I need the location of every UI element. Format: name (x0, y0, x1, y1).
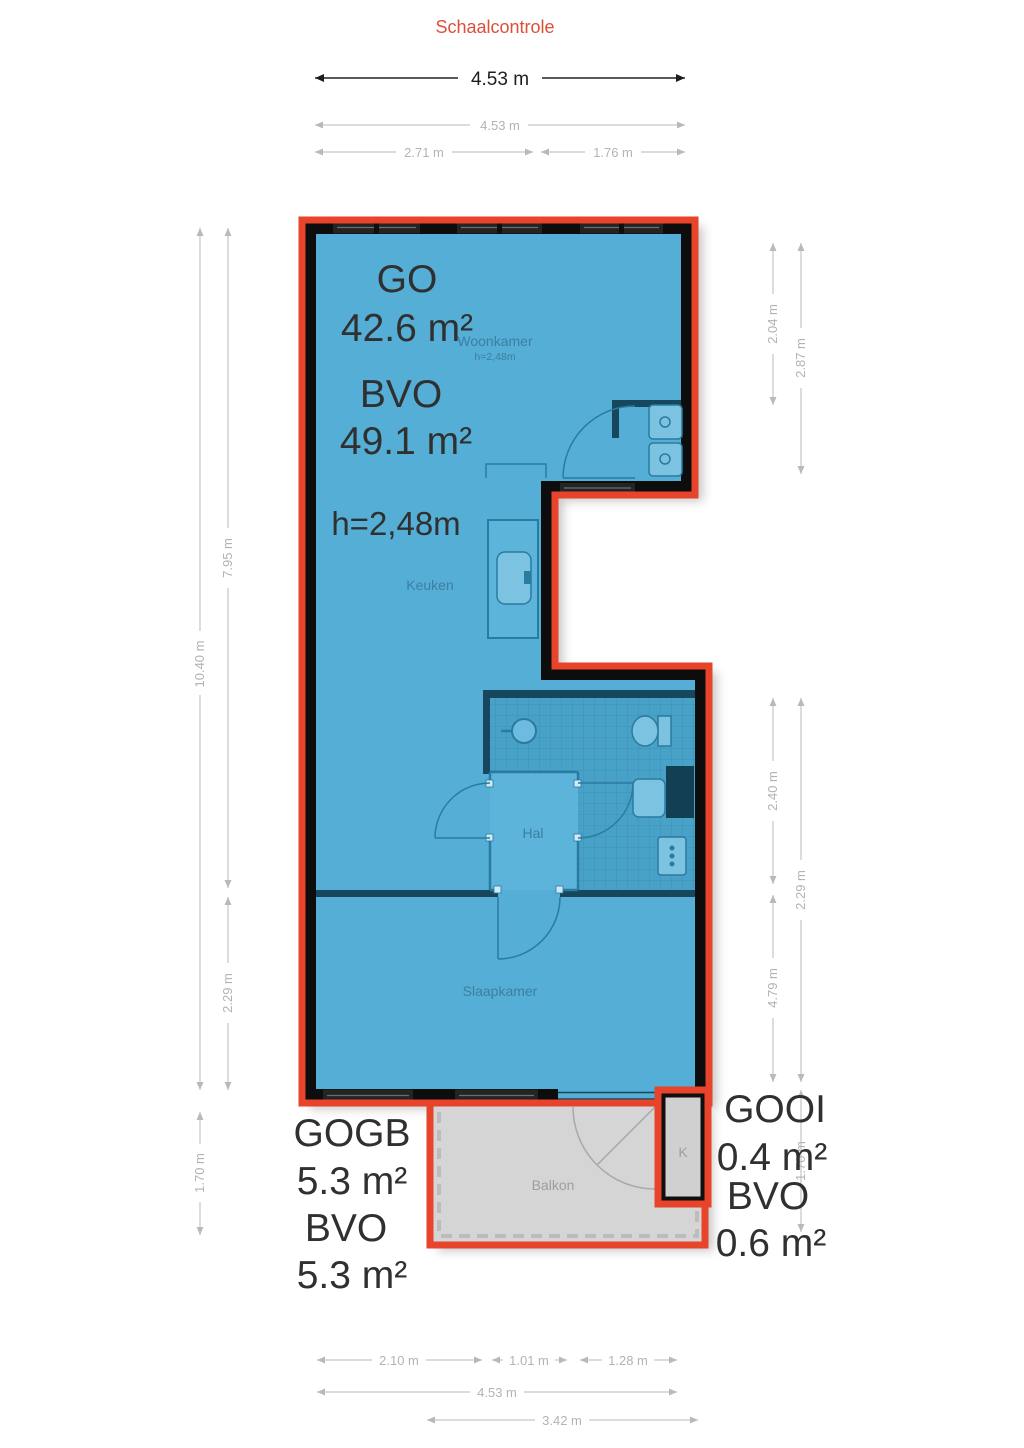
dim-label-bottom-5: 3.42 m (542, 1413, 582, 1428)
gogb-bvo-label: BVO (305, 1207, 387, 1250)
utility-shaft (666, 766, 694, 818)
partition-bedroom-right (560, 890, 695, 897)
go-value: 42.6 m² (341, 307, 473, 350)
dim-label-top-right: 1.76 m (593, 145, 633, 160)
washer-knob (670, 846, 675, 851)
washer-knob (670, 862, 675, 867)
gooi-bvo-label: BVO (727, 1175, 809, 1218)
dim-label-right-2: 2.87 m (793, 338, 808, 378)
dimensions-bottom: 2.10 m 1.01 m 1.28 m 4.53 m 3.42 m (317, 1352, 698, 1428)
room-label-slaapkamer: Slaapkamer (463, 983, 538, 999)
area-summary-storage: GOOI 0.4 m² BVO 0.6 m² (716, 1088, 828, 1265)
kitchen-faucet (524, 571, 531, 584)
washer-knob (670, 854, 675, 859)
bvo-value: 49.1 m² (340, 420, 472, 463)
dim-label-right-4: 4.79 m (765, 968, 780, 1008)
floor-plan-svg: Schaalcontrole 4.53 m 4.53 m 2.71 m 1.76… (0, 0, 1024, 1448)
gogb-label: GOGB (293, 1112, 410, 1155)
partition-wc-left (612, 400, 619, 438)
partition-bathroom-top (483, 690, 695, 698)
dim-label-right-5: 2.29 m (793, 870, 808, 910)
dim-label-bottom-3: 1.28 m (608, 1353, 648, 1368)
dim-label-bottom-2: 1.01 m (509, 1353, 549, 1368)
door-jamb (556, 886, 563, 893)
wc-boiler (649, 443, 682, 476)
gogb-bvo-value: 5.3 m² (297, 1254, 408, 1297)
dim-label-left-upper: 7.95 m (220, 538, 235, 578)
scale-check-label: 4.53 m (471, 69, 529, 90)
dim-label-left-balcony: 1.70 m (192, 1153, 207, 1193)
go-label: GO (377, 258, 438, 301)
dimensions-top: 4.53 m 2.71 m 1.76 m (315, 117, 685, 160)
room-label-hal: Hal (522, 825, 543, 841)
gooi-label: GOOI (724, 1088, 826, 1131)
shower-head (512, 719, 536, 743)
room-label-woonkamer-height: h=2,48m (474, 351, 515, 363)
dim-label-top-left: 2.71 m (404, 145, 444, 160)
dim-label-right-1: 2.04 m (765, 304, 780, 344)
toilet-tank (658, 716, 671, 746)
washbasin (633, 779, 665, 817)
scale-check-bar: 4.53 m (315, 66, 685, 90)
bvo-label: BVO (360, 373, 442, 416)
partition-bathroom-left (483, 690, 490, 774)
door-jamb (494, 886, 501, 893)
area-summary-balcony: GOGB 5.3 m² BVO 5.3 m² (293, 1112, 410, 1297)
wc-basin (649, 405, 682, 439)
dim-label-left-lower: 2.29 m (220, 973, 235, 1013)
dim-label-bottom-1: 2.10 m (379, 1353, 419, 1368)
gooi-value: 0.4 m² (717, 1136, 828, 1179)
room-label-keuken: Keuken (406, 577, 453, 593)
dimensions-left: 10.40 m 7.95 m 2.29 m 1.70 m (192, 228, 236, 1235)
dim-label-right-3: 2.40 m (765, 771, 780, 811)
toilet-bowl (632, 716, 658, 746)
room-label-kast: K (678, 1144, 688, 1160)
page-title: Schaalcontrole (435, 17, 554, 37)
dim-label-top-total: 4.53 m (480, 118, 520, 133)
dim-label-bottom-4: 4.53 m (477, 1385, 517, 1400)
partition-bedroom-left (316, 890, 498, 897)
gogb-value: 5.3 m² (297, 1160, 408, 1203)
ceiling-height-label: h=2,48m (331, 505, 460, 542)
room-label-balkon: Balkon (532, 1177, 575, 1193)
storage-closet: K (658, 1090, 708, 1204)
gooi-bvo-value: 0.6 m² (716, 1222, 827, 1265)
floorplan-page: Schaalcontrole 4.53 m 4.53 m 2.71 m 1.76… (0, 0, 1024, 1448)
dim-label-left-total: 10.40 m (192, 641, 207, 688)
dimensions-right: 2.04 m 2.87 m 2.40 m 4.79 m 2.29 m 1.70 … (765, 243, 809, 1232)
